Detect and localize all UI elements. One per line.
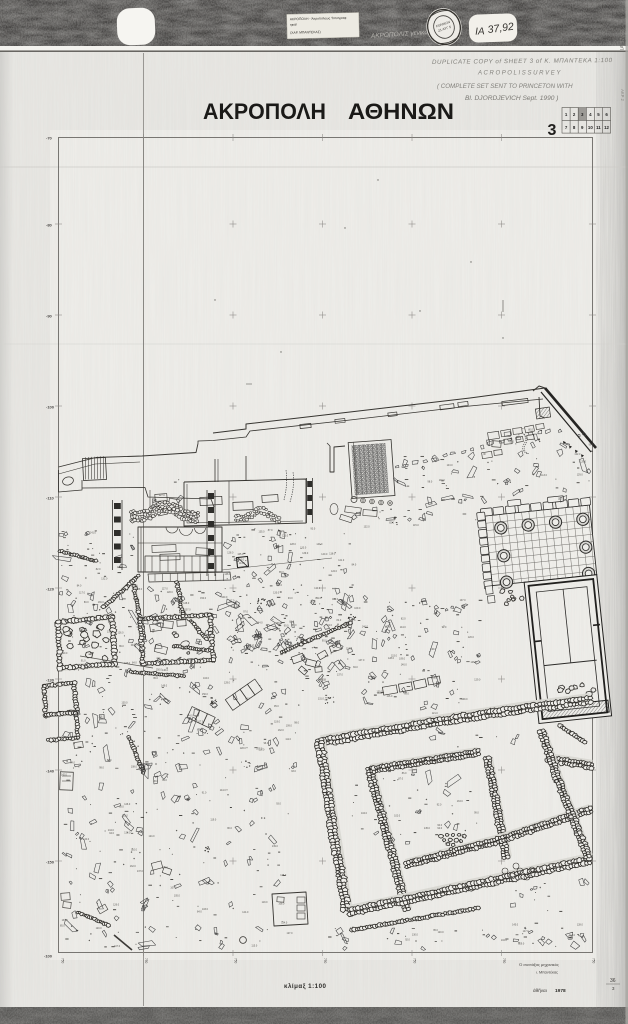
svg-text:ηικά!: ηικά! [290, 23, 297, 27]
svg-text:ΙΑ 37,92: ΙΑ 37,92 [620, 30, 626, 50]
svg-text:ΙΑ: ΙΑ [475, 26, 485, 37]
svg-text:(ΧΑΡ. ΜΠΑΝΤΕΚΑΣ): (ΧΑΡ. ΜΠΑΝΤΕΚΑΣ) [290, 30, 321, 35]
